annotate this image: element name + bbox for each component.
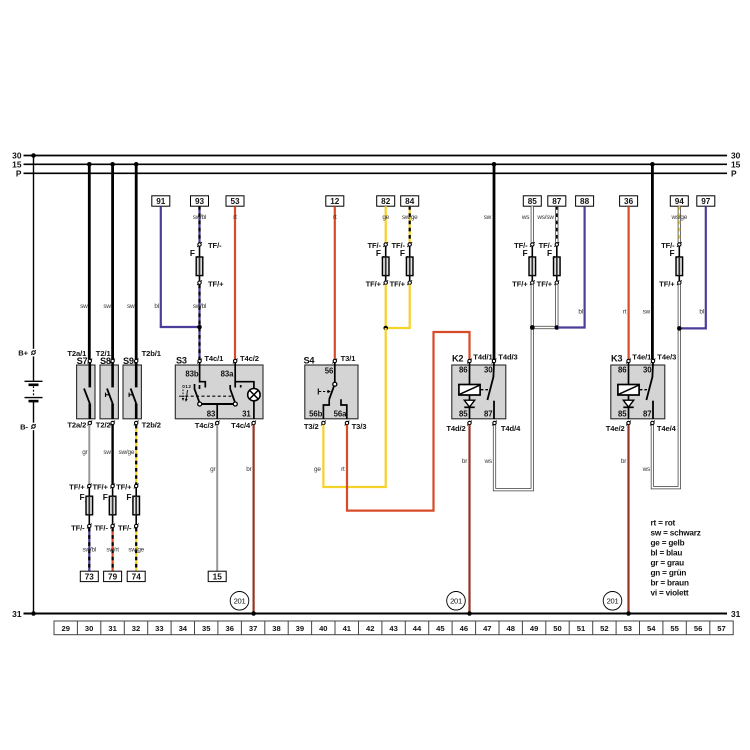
svg-text:ge: ge bbox=[314, 466, 321, 473]
svg-text:T4e/4: T4e/4 bbox=[657, 424, 677, 433]
svg-text:36: 36 bbox=[225, 624, 233, 633]
svg-text:sw: sw bbox=[103, 303, 111, 310]
svg-text:K2: K2 bbox=[452, 354, 463, 364]
svg-text:sw/bl: sw/bl bbox=[83, 546, 97, 553]
svg-text:TF/-: TF/- bbox=[208, 241, 222, 250]
svg-text:93: 93 bbox=[195, 197, 205, 206]
svg-text:TF/+: TF/+ bbox=[390, 279, 406, 288]
svg-text:T2a/2: T2a/2 bbox=[67, 421, 86, 430]
svg-text:56a: 56a bbox=[334, 409, 347, 418]
svg-text:F: F bbox=[522, 248, 527, 258]
svg-text:br = braun: br = braun bbox=[651, 579, 689, 588]
svg-text:48: 48 bbox=[506, 624, 514, 633]
svg-text:F: F bbox=[190, 248, 195, 258]
svg-text:53: 53 bbox=[230, 197, 240, 206]
svg-text:51: 51 bbox=[577, 624, 586, 633]
svg-text:T4d/1: T4d/1 bbox=[473, 353, 493, 362]
svg-text:gr = grau: gr = grau bbox=[651, 559, 685, 568]
svg-text:91: 91 bbox=[156, 197, 166, 206]
svg-text:rt = rot: rt = rot bbox=[651, 519, 676, 528]
svg-text:87: 87 bbox=[484, 409, 492, 418]
svg-text:52: 52 bbox=[600, 624, 608, 633]
svg-text:K3: K3 bbox=[611, 354, 622, 364]
svg-text:83a: 83a bbox=[221, 370, 234, 379]
svg-text:ge = gelb: ge = gelb bbox=[651, 539, 685, 548]
svg-text:201: 201 bbox=[234, 597, 246, 606]
svg-text:TF/+: TF/+ bbox=[537, 279, 553, 288]
svg-text:T2a/1: T2a/1 bbox=[67, 349, 87, 358]
svg-text:T4e/1: T4e/1 bbox=[632, 353, 652, 362]
svg-text:88: 88 bbox=[580, 197, 590, 206]
svg-text:gn = grün: gn = grün bbox=[651, 569, 687, 578]
svg-text:TF/+: TF/+ bbox=[92, 483, 108, 492]
svg-text:T4c/2: T4c/2 bbox=[240, 354, 259, 363]
svg-text:55: 55 bbox=[670, 624, 679, 633]
svg-text:sw/ge: sw/ge bbox=[118, 449, 134, 456]
svg-text:rt: rt bbox=[623, 309, 627, 316]
svg-text:T2b/1: T2b/1 bbox=[142, 349, 162, 358]
svg-text:F: F bbox=[126, 492, 131, 502]
svg-text:36: 36 bbox=[624, 197, 634, 206]
svg-text:T4e/3: T4e/3 bbox=[657, 353, 676, 362]
svg-text:TF/+: TF/+ bbox=[69, 483, 85, 492]
svg-text:35: 35 bbox=[202, 624, 211, 633]
svg-text:79: 79 bbox=[108, 573, 118, 582]
svg-text:85: 85 bbox=[528, 197, 538, 206]
svg-text:38: 38 bbox=[272, 624, 280, 633]
svg-text:sw/bl: sw/bl bbox=[193, 303, 207, 310]
svg-text:73: 73 bbox=[85, 573, 95, 582]
svg-text:T2/1: T2/1 bbox=[96, 349, 112, 358]
svg-text:47: 47 bbox=[483, 624, 491, 633]
svg-text:T4c/3: T4c/3 bbox=[195, 421, 214, 430]
svg-text:87: 87 bbox=[643, 409, 651, 418]
svg-text:50: 50 bbox=[553, 624, 561, 633]
svg-text:45: 45 bbox=[436, 624, 445, 633]
svg-text:TF/+: TF/+ bbox=[659, 279, 675, 288]
svg-text:rt: rt bbox=[233, 214, 237, 221]
svg-text:37: 37 bbox=[249, 624, 257, 633]
svg-text:TF/-: TF/- bbox=[71, 524, 85, 533]
svg-text:49: 49 bbox=[530, 624, 538, 633]
svg-text:0 1 2: 0 1 2 bbox=[182, 384, 191, 389]
svg-text:T4d/2: T4d/2 bbox=[446, 424, 465, 433]
svg-text:41: 41 bbox=[343, 624, 352, 633]
svg-text:54: 54 bbox=[647, 624, 656, 633]
svg-text:sw/bl: sw/bl bbox=[193, 214, 207, 221]
svg-text:sw: sw bbox=[80, 303, 88, 310]
svg-text:sw: sw bbox=[127, 303, 135, 310]
svg-text:T2/2: T2/2 bbox=[96, 421, 111, 430]
svg-text:T4c/1: T4c/1 bbox=[204, 354, 224, 363]
svg-text:85: 85 bbox=[459, 409, 468, 418]
svg-text:TF/+: TF/+ bbox=[366, 279, 382, 288]
svg-text:S3: S3 bbox=[176, 356, 187, 366]
svg-text:84: 84 bbox=[405, 197, 415, 206]
svg-text:sw: sw bbox=[643, 309, 651, 316]
svg-text:F: F bbox=[376, 248, 381, 258]
svg-text:201: 201 bbox=[450, 597, 462, 606]
svg-text:T2b/2: T2b/2 bbox=[142, 421, 161, 430]
svg-text:T4d/3: T4d/3 bbox=[498, 353, 517, 362]
svg-text:ws/ge: ws/ge bbox=[670, 214, 687, 221]
svg-text:34: 34 bbox=[179, 624, 188, 633]
svg-text:TF/+: TF/+ bbox=[512, 279, 528, 288]
svg-text:TF/-: TF/- bbox=[118, 524, 132, 533]
svg-text:TF/+: TF/+ bbox=[116, 483, 132, 492]
svg-text:31: 31 bbox=[731, 609, 741, 619]
svg-text:29: 29 bbox=[61, 624, 69, 633]
svg-text:56: 56 bbox=[694, 624, 702, 633]
svg-text:40: 40 bbox=[319, 624, 327, 633]
svg-text:56b: 56b bbox=[309, 409, 322, 418]
svg-text:sw/ge: sw/ge bbox=[402, 214, 418, 221]
svg-text:85: 85 bbox=[618, 409, 627, 418]
svg-text:B+: B+ bbox=[18, 349, 28, 358]
svg-text:94: 94 bbox=[675, 197, 685, 206]
svg-text:83: 83 bbox=[207, 409, 216, 418]
svg-text:ge: ge bbox=[382, 214, 389, 221]
svg-text:42: 42 bbox=[366, 624, 374, 633]
svg-text:sw/rt: sw/rt bbox=[106, 546, 119, 553]
svg-text:sw: sw bbox=[103, 449, 111, 456]
svg-text:86: 86 bbox=[459, 366, 468, 375]
svg-text:82: 82 bbox=[381, 197, 391, 206]
svg-text:97: 97 bbox=[701, 197, 711, 206]
svg-text:T3/1: T3/1 bbox=[341, 354, 357, 363]
svg-text:P: P bbox=[731, 168, 737, 178]
svg-text:46: 46 bbox=[460, 624, 468, 633]
svg-text:31: 31 bbox=[108, 624, 117, 633]
svg-text:31: 31 bbox=[242, 409, 251, 418]
svg-text:T4e/2: T4e/2 bbox=[606, 424, 625, 433]
svg-text:ws: ws bbox=[521, 214, 529, 221]
svg-text:rt: rt bbox=[333, 214, 337, 221]
svg-text:S9: S9 bbox=[123, 356, 134, 366]
svg-text:F: F bbox=[103, 492, 108, 502]
svg-text:bl = blau: bl = blau bbox=[651, 549, 683, 558]
svg-text:53: 53 bbox=[624, 624, 632, 633]
svg-text:30: 30 bbox=[85, 624, 93, 633]
svg-text:F: F bbox=[400, 248, 405, 258]
svg-text:bl: bl bbox=[154, 303, 159, 310]
svg-text:86: 86 bbox=[618, 366, 627, 375]
svg-text:ws/sw: ws/sw bbox=[536, 214, 554, 221]
svg-text:12: 12 bbox=[330, 197, 340, 206]
svg-text:44: 44 bbox=[413, 624, 422, 633]
svg-text:30: 30 bbox=[484, 366, 493, 375]
svg-text:B-: B- bbox=[20, 423, 28, 432]
svg-text:F: F bbox=[669, 248, 674, 258]
svg-text:201: 201 bbox=[607, 597, 619, 606]
svg-text:32: 32 bbox=[132, 624, 140, 633]
svg-text:sw: sw bbox=[484, 214, 492, 221]
svg-text:T3/3: T3/3 bbox=[352, 422, 367, 431]
svg-text:33: 33 bbox=[155, 624, 163, 633]
svg-text:rt: rt bbox=[341, 466, 345, 473]
svg-text:ws: ws bbox=[483, 458, 491, 465]
svg-text:57: 57 bbox=[717, 624, 725, 633]
svg-text:87: 87 bbox=[552, 197, 562, 206]
svg-text:P: P bbox=[16, 168, 22, 178]
svg-text:F: F bbox=[547, 248, 552, 258]
svg-text:15: 15 bbox=[213, 573, 223, 582]
svg-text:ws: ws bbox=[642, 466, 650, 473]
svg-text:bl: bl bbox=[699, 309, 704, 316]
svg-text:56: 56 bbox=[325, 367, 334, 376]
svg-text:TF/+: TF/+ bbox=[208, 279, 224, 288]
svg-text:T4c/4: T4c/4 bbox=[231, 421, 251, 430]
svg-text:T3/2: T3/2 bbox=[304, 422, 319, 431]
svg-text:43: 43 bbox=[389, 624, 397, 633]
svg-text:T4d/4: T4d/4 bbox=[501, 424, 521, 433]
svg-text:31: 31 bbox=[12, 609, 22, 619]
svg-text:39: 39 bbox=[296, 624, 304, 633]
svg-text:74: 74 bbox=[132, 573, 142, 582]
svg-text:30: 30 bbox=[643, 366, 652, 375]
svg-text:F: F bbox=[79, 492, 84, 502]
svg-text:83b: 83b bbox=[185, 370, 198, 379]
svg-text:TF/-: TF/- bbox=[94, 524, 108, 533]
svg-text:bl: bl bbox=[578, 309, 583, 316]
svg-text:S4: S4 bbox=[304, 356, 316, 366]
svg-text:sw/ge: sw/ge bbox=[128, 546, 144, 553]
svg-text:vi = violett: vi = violett bbox=[651, 589, 689, 598]
svg-text:sw = schwarz: sw = schwarz bbox=[651, 529, 701, 538]
